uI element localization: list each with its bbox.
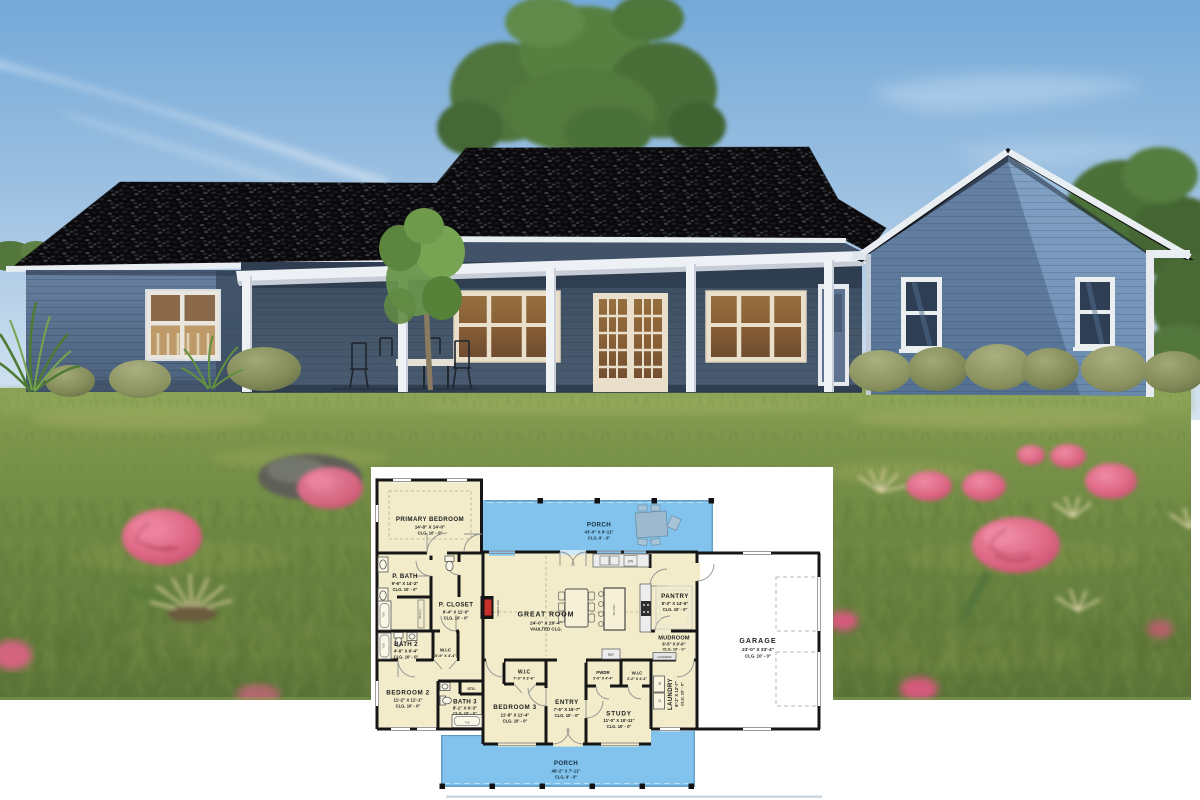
svg-text:TUB: TUB bbox=[382, 643, 386, 648]
svg-text:REF: REF bbox=[608, 653, 614, 657]
svg-text:6'-1" X 12'-7": 6'-1" X 12'-7" bbox=[674, 681, 679, 707]
svg-text:P. BATH: P. BATH bbox=[392, 573, 418, 580]
svg-text:BATH 3: BATH 3 bbox=[453, 699, 477, 706]
svg-text:7'-5" X 15'-7": 7'-5" X 15'-7" bbox=[554, 707, 581, 712]
svg-text:11'-8" X 11'-4": 11'-8" X 11'-4" bbox=[501, 713, 530, 718]
svg-text:43'-0" X 9'-11": 43'-0" X 9'-11" bbox=[585, 530, 614, 535]
svg-text:TUB: TUB bbox=[464, 721, 469, 725]
svg-text:CLG. 10' - 0": CLG. 10' - 0" bbox=[444, 616, 469, 621]
svg-text:CLG. 10' - 0": CLG. 10' - 0" bbox=[663, 607, 688, 612]
svg-text:PRIMARY BEDROOM: PRIMARY BEDROOM bbox=[396, 516, 464, 523]
svg-text:CLG. 10' - 0": CLG. 10' - 0" bbox=[662, 647, 685, 652]
svg-text:4'-6" X 9'-4": 4'-6" X 9'-4" bbox=[394, 649, 418, 654]
svg-text:FIREPLACE: FIREPLACE bbox=[496, 600, 500, 617]
svg-text:CLG. 10' - 0": CLG. 10' - 0" bbox=[680, 682, 685, 706]
svg-text:PWDR: PWDR bbox=[596, 670, 610, 675]
svg-text:CLG. 10' - 0": CLG. 10' - 0" bbox=[393, 587, 418, 592]
svg-text:48'-2" X 7'-11": 48'-2" X 7'-11" bbox=[552, 769, 581, 774]
svg-text:CLG. 10' - 0": CLG. 10' - 0" bbox=[745, 654, 771, 659]
svg-text:7'-0" X 3'-6": 7'-0" X 3'-6" bbox=[513, 676, 535, 681]
svg-text:STO.: STO. bbox=[467, 687, 475, 691]
svg-text:BEDROOM 2: BEDROOM 2 bbox=[386, 690, 430, 697]
svg-text:W.I.C: W.I.C bbox=[440, 648, 452, 653]
svg-text:LOCKERS: LOCKERS bbox=[657, 655, 671, 659]
svg-text:ENTRY: ENTRY bbox=[555, 699, 579, 706]
svg-text:CLG. 10' - 0": CLG. 10' - 0" bbox=[396, 704, 421, 709]
svg-text:PORCH: PORCH bbox=[587, 522, 611, 529]
svg-text:3'-2" X 4'-4": 3'-2" X 4'-4" bbox=[627, 677, 647, 681]
svg-text:PORCH: PORCH bbox=[554, 760, 578, 767]
svg-text:CLG. 9' - 0": CLG. 9' - 0" bbox=[588, 536, 611, 541]
svg-text:TUB: TUB bbox=[382, 612, 386, 617]
svg-text:CLG. 10' - 0": CLG. 10' - 0" bbox=[503, 719, 528, 724]
svg-text:CLG. 10' - 0": CLG. 10' - 0" bbox=[555, 713, 580, 718]
svg-text:BEDROOM 3: BEDROOM 3 bbox=[493, 704, 537, 711]
svg-text:23'-0" X 33'-4": 23'-0" X 33'-4" bbox=[742, 647, 774, 653]
svg-text:9'-6" X 14'-2": 9'-6" X 14'-2" bbox=[392, 581, 419, 586]
svg-text:W.I.C: W.I.C bbox=[632, 671, 644, 676]
svg-text:5'-9" X 4'-4": 5'-9" X 4'-4" bbox=[435, 654, 456, 658]
svg-text:GARAGE: GARAGE bbox=[739, 638, 776, 645]
svg-text:CLG. 10' - 0": CLG. 10' - 0" bbox=[453, 711, 477, 716]
svg-text:CLG. 10' - 0": CLG. 10' - 0" bbox=[394, 655, 419, 660]
svg-text:CLG. 10' - 0": CLG. 10' - 0" bbox=[418, 531, 443, 536]
svg-text:CLG. 10' - 0": CLG. 10' - 0" bbox=[607, 724, 632, 729]
svg-text:11'-2" X 12'-1": 11'-2" X 12'-1" bbox=[394, 698, 423, 703]
svg-text:ISLAND: ISLAND bbox=[612, 604, 616, 616]
svg-text:14'-8" X 14'-0": 14'-8" X 14'-0" bbox=[415, 525, 446, 530]
svg-text:VAULTED CLG.: VAULTED CLG. bbox=[530, 627, 562, 632]
svg-text:3'-0" X 4'-4": 3'-0" X 4'-4" bbox=[593, 677, 613, 681]
svg-text:11'-0" X 10'-11": 11'-0" X 10'-11" bbox=[603, 718, 634, 723]
svg-text:GREAT ROOM: GREAT ROOM bbox=[518, 612, 575, 619]
svg-text:PANTRY: PANTRY bbox=[661, 593, 689, 600]
svg-text:DW: DW bbox=[628, 560, 633, 564]
svg-text:BATH 2: BATH 2 bbox=[394, 641, 418, 648]
svg-text:9'-4" X 11'-0": 9'-4" X 11'-0" bbox=[443, 610, 470, 615]
svg-text:BENCH: BENCH bbox=[418, 609, 422, 618]
svg-text:8'-3" X 14'-6": 8'-3" X 14'-6" bbox=[662, 601, 689, 606]
svg-text:CLG. 9' - 0": CLG. 9' - 0" bbox=[555, 775, 578, 780]
svg-text:STUDY: STUDY bbox=[606, 711, 632, 718]
svg-text:P. CLOSET: P. CLOSET bbox=[439, 602, 474, 609]
